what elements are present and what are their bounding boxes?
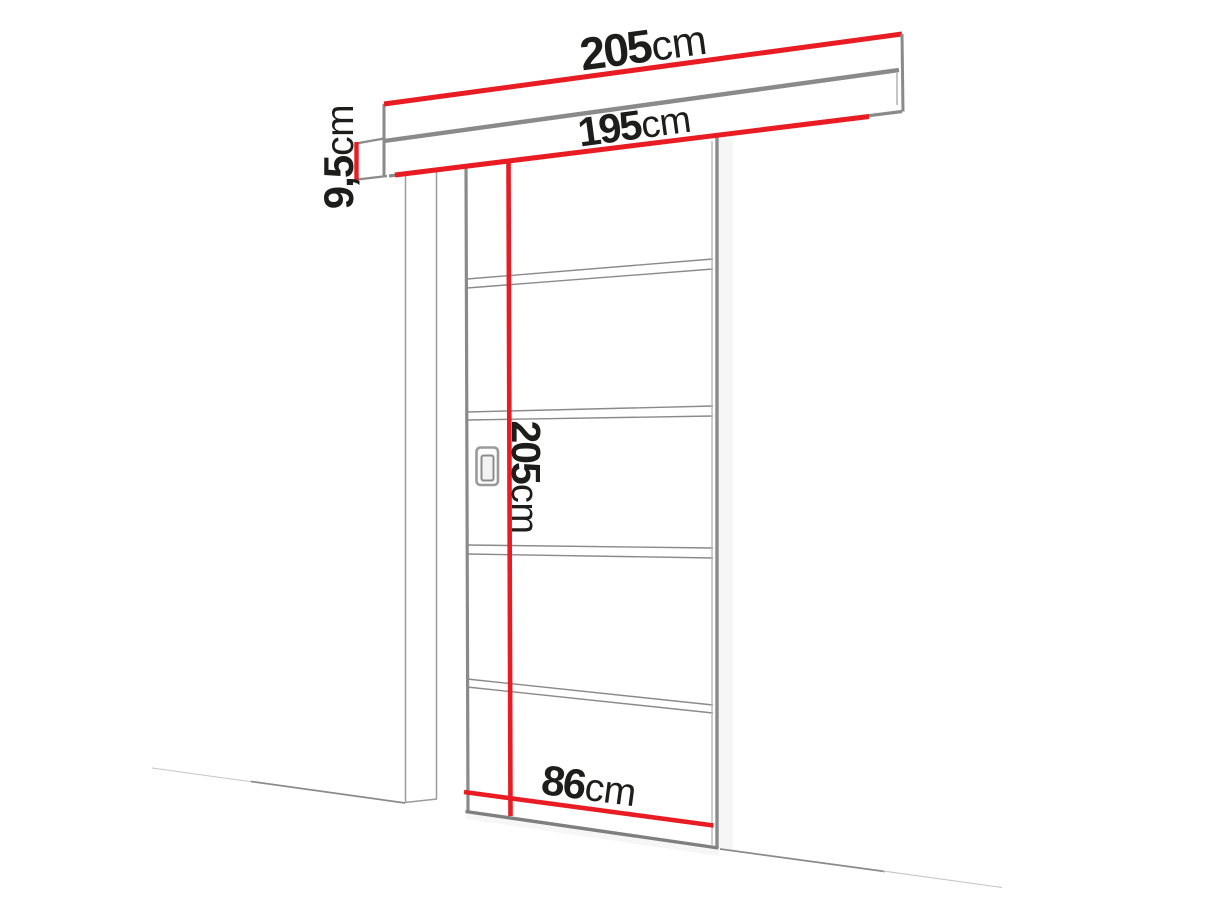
door-height-label: 205cm — [503, 420, 549, 533]
sliding-door-diagram: 205cm 195cm 9,5cm 205cm 86cm — [0, 0, 1214, 911]
track-right-edge — [902, 34, 903, 112]
floor-right-fade — [883, 871, 1002, 888]
floor-left-line — [251, 782, 405, 804]
floor-right-line — [720, 849, 885, 872]
diagram-canvas: 205cm 195cm 9,5cm 205cm 86cm — [0, 0, 1214, 911]
wall-jamb — [405, 172, 437, 803]
handle-inner — [482, 456, 494, 481]
floor-left-fade — [152, 768, 253, 782]
door-left-edge — [466, 162, 468, 812]
door-handle-icon — [477, 448, 499, 486]
track-height-label: 9,5cm — [315, 105, 362, 209]
jamb-bottom-line — [405, 799, 437, 803]
door-right-shadow — [719, 137, 733, 851]
